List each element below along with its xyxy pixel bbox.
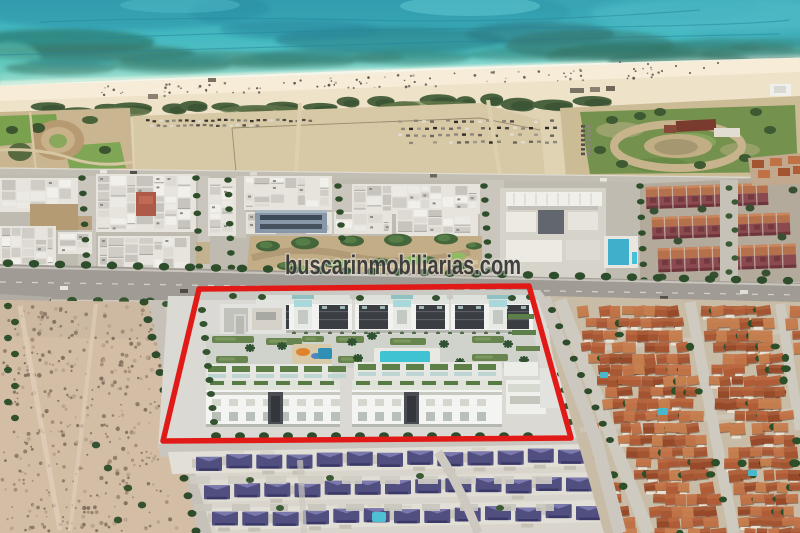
svg-text:buscarinmobiliarias.com: buscarinmobiliarias.com bbox=[285, 250, 521, 280]
